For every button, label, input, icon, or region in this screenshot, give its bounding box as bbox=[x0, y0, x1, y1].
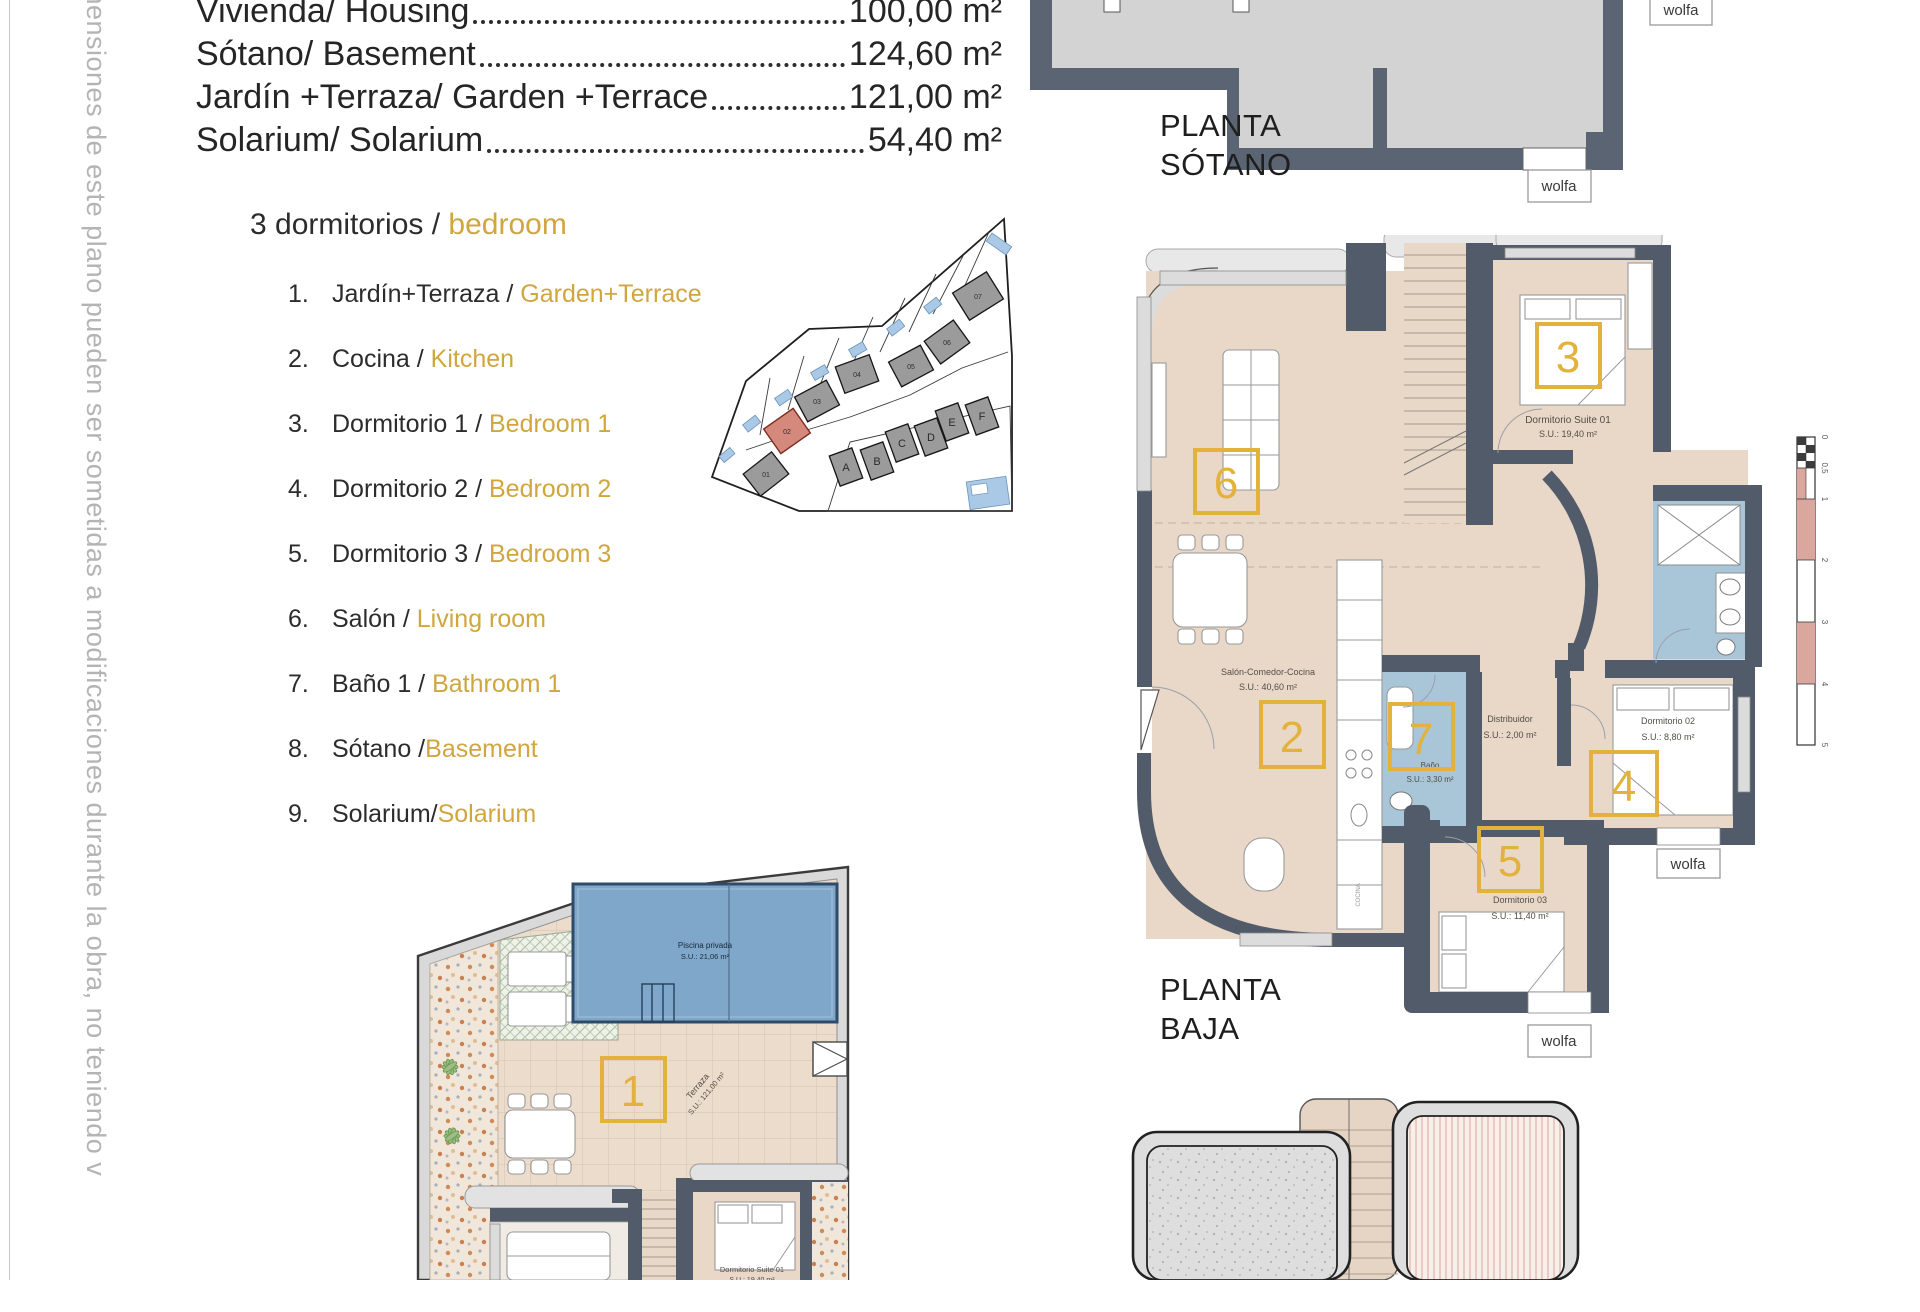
vent-opening bbox=[1657, 828, 1720, 845]
legend-item-en: Garden+Terrace bbox=[520, 280, 701, 308]
basement-floor-upper bbox=[1052, 0, 1603, 68]
legend-item-1: 1.Jardín+Terraza / Garden+Terrace bbox=[288, 280, 702, 345]
svg-text:05: 05 bbox=[907, 364, 915, 371]
legend-item-es: Baño 1 / bbox=[332, 670, 432, 698]
legend-item-number: 5. bbox=[288, 540, 332, 569]
area-row: Sótano/ Basement 124,60 m² bbox=[196, 31, 1002, 74]
legend-item-en: Kitchen bbox=[431, 345, 514, 373]
legend-item-en: Bathroom 1 bbox=[432, 670, 561, 698]
salon-name: Salón-Comedor-Cocina bbox=[1221, 667, 1315, 677]
legend-item-6: 6.Salón / Living room bbox=[288, 605, 702, 670]
svg-text:01: 01 bbox=[762, 472, 770, 479]
staircase bbox=[1404, 243, 1466, 523]
suite-closet bbox=[1628, 263, 1652, 349]
basement-vent-opening bbox=[1523, 148, 1586, 170]
legend-title: 3 dormitorios / bedroom bbox=[250, 208, 567, 242]
pool-name: Piscina privada bbox=[678, 941, 733, 950]
svg-text:03: 03 bbox=[813, 399, 821, 406]
svg-text:4: 4 bbox=[1820, 682, 1829, 687]
garden-suite-name: Dormitorio Suite 01 bbox=[720, 1265, 784, 1274]
area-value: 100,00 m² bbox=[849, 0, 1002, 31]
legend-item-number: 8. bbox=[288, 735, 332, 764]
legend-item-es: Sótano / bbox=[332, 735, 425, 763]
legend-item-en: Solarium bbox=[438, 800, 537, 828]
distribuidor-name: Distribuidor bbox=[1487, 714, 1533, 724]
skylight-hatch bbox=[813, 1042, 847, 1076]
salon-area: S.U.: 40,60 m² bbox=[1239, 682, 1297, 692]
legend-item-number: 9. bbox=[288, 800, 332, 829]
legend-title-es: 3 dormitorios / bbox=[250, 208, 448, 241]
basement-floor-plan: wolfa wolfa bbox=[1020, 0, 1720, 210]
bedroom2-area: S.U.: 8,80 m² bbox=[1641, 732, 1694, 742]
svg-text:E: E bbox=[948, 417, 955, 429]
bedroom3-area: S.U.: 11,40 m² bbox=[1491, 911, 1548, 921]
svg-text:0: 0 bbox=[1820, 435, 1829, 440]
svg-text:0,5: 0,5 bbox=[1820, 462, 1829, 474]
garden-number-1: 1 bbox=[621, 1067, 645, 1116]
room-number-2: 2 bbox=[1280, 713, 1304, 762]
scale-bar: 0 0,5 1 2 3 4 5 bbox=[1797, 435, 1829, 748]
sink bbox=[1720, 579, 1740, 595]
basement-title-line2: SÓTANO bbox=[1160, 145, 1292, 184]
svg-text:07: 07 bbox=[974, 294, 982, 301]
legend-item-number: 7. bbox=[288, 670, 332, 699]
legend-item-es: Dormitorio 1 / bbox=[332, 410, 489, 438]
garden-terrace-plan: Piscina privada S.U.: 21,06 m² 1 Terraza… bbox=[400, 852, 880, 1280]
basement-wall-stub bbox=[1373, 68, 1387, 148]
legend-item-4: 4.Dormitorio 2 / Bedroom 2 bbox=[288, 475, 702, 540]
room-number-6: 6 bbox=[1214, 459, 1238, 508]
cocina-vertical-label: COCINA bbox=[1356, 883, 1362, 906]
side-disclaimer-text: mensiones de este plano pueden ser somet… bbox=[80, 0, 111, 1312]
svg-text:2: 2 bbox=[1820, 558, 1829, 563]
legend-title-en: bedroom bbox=[448, 208, 566, 241]
svg-text:02: 02 bbox=[783, 429, 791, 436]
suite-name: Dormitorio Suite 01 bbox=[1525, 415, 1611, 426]
svg-text:C: C bbox=[898, 438, 906, 450]
legend-item-es: Jardín+Terraza / bbox=[332, 280, 520, 308]
basement-pillar bbox=[1104, 0, 1120, 12]
bedroom2-name: Dormitorio 02 bbox=[1641, 716, 1695, 726]
porch-band bbox=[1146, 249, 1350, 273]
dot-leader bbox=[480, 63, 845, 67]
sink bbox=[1720, 609, 1740, 625]
toilet bbox=[1717, 639, 1735, 655]
legend-item-es: Dormitorio 3 / bbox=[332, 540, 489, 568]
svg-text:A: A bbox=[842, 462, 850, 474]
wolfa-label: wolfa bbox=[1540, 1033, 1577, 1050]
wolfa-label: wolfa bbox=[1662, 2, 1699, 19]
dot-leader bbox=[473, 20, 844, 24]
wolfa-label: wolfa bbox=[1540, 178, 1577, 195]
legend-item-en: Living room bbox=[417, 605, 546, 633]
legend-item-es: Cocina / bbox=[332, 345, 431, 373]
legend-item-en: Bedroom 3 bbox=[489, 540, 611, 568]
bano-area: S.U.: 3,30 m² bbox=[1406, 775, 1453, 784]
legend-item-3: 3.Dormitorio 1 / Bedroom 1 bbox=[288, 410, 702, 475]
dot-leader bbox=[712, 106, 845, 110]
legend-list: 1.Jardín+Terraza / Garden+Terrace 2.Coci… bbox=[288, 280, 702, 865]
svg-text:5: 5 bbox=[1820, 743, 1829, 748]
legend-item-5: 5.Dormitorio 3 / Bedroom 3 bbox=[288, 540, 702, 605]
solarium-deck-right bbox=[1393, 1102, 1578, 1280]
area-label: Jardín +Terraza/ Garden +Terrace bbox=[196, 78, 708, 117]
bedroom3-name: Dormitorio 03 bbox=[1493, 895, 1547, 905]
room-number-4: 4 bbox=[1612, 762, 1636, 811]
dot-leader bbox=[487, 149, 864, 153]
kitchen-counter bbox=[1337, 560, 1382, 929]
wolfa-label: wolfa bbox=[1669, 856, 1706, 873]
suite-area: S.U.: 19,40 m² bbox=[1539, 429, 1597, 439]
area-label: Vivienda/ Housing bbox=[196, 0, 469, 31]
area-value: 54,40 m² bbox=[868, 121, 1002, 160]
vent-opening bbox=[1528, 992, 1591, 1013]
legend-item-number: 1. bbox=[288, 280, 332, 309]
area-value: 121,00 m² bbox=[849, 78, 1002, 117]
legend-item-es: Solarium/ bbox=[332, 800, 438, 828]
svg-text:F: F bbox=[979, 411, 986, 423]
site-plan-map: 07 06 05 04 03 02 01 A B C D E F bbox=[700, 210, 1030, 520]
ground-title-line1: PLANTA bbox=[1160, 970, 1281, 1009]
svg-text:3: 3 bbox=[1820, 620, 1829, 625]
pool-area: S.U.: 21,06 m² bbox=[681, 952, 730, 961]
legend-item-number: 4. bbox=[288, 475, 332, 504]
svg-text:1: 1 bbox=[1820, 497, 1829, 502]
dining-table bbox=[1173, 553, 1247, 627]
page-border-line bbox=[9, 0, 10, 1280]
legend-item-en: Basement bbox=[425, 735, 538, 763]
svg-text:D: D bbox=[927, 432, 935, 444]
basement-pillar bbox=[1586, 132, 1603, 148]
distribuidor-area: S.U.: 2,00 m² bbox=[1483, 730, 1536, 740]
area-row: Vivienda/ Housing 100,00 m² bbox=[196, 0, 1002, 31]
kitchen-island bbox=[1244, 838, 1284, 891]
legend-item-en: Bedroom 1 bbox=[489, 410, 611, 438]
legend-item-es: Salón / bbox=[332, 605, 417, 633]
legend-item-7: 7.Baño 1 / Bathroom 1 bbox=[288, 670, 702, 735]
svg-text:04: 04 bbox=[853, 372, 861, 379]
legend-item-number: 6. bbox=[288, 605, 332, 634]
solarium-deck-left bbox=[1133, 1132, 1350, 1280]
area-value: 124,60 m² bbox=[849, 35, 1002, 74]
basement-title: PLANTA SÓTANO bbox=[1160, 106, 1292, 184]
ground-title: PLANTA BAJA bbox=[1160, 970, 1281, 1048]
area-summary: Vivienda/ Housing 100,00 m² Sótano/ Base… bbox=[196, 0, 1002, 160]
tv-cabinet bbox=[1152, 363, 1166, 457]
legend-item-number: 3. bbox=[288, 410, 332, 439]
area-label: Sótano/ Basement bbox=[196, 35, 476, 74]
room-number-5: 5 bbox=[1498, 837, 1522, 886]
ground-floor-plan: Dormitorio Suite 01 S.U.: 19,40 m² Salón… bbox=[1100, 235, 1880, 1065]
area-row: Solarium/ Solarium 54,40 m² bbox=[196, 117, 1002, 160]
area-label: Solarium/ Solarium bbox=[196, 121, 483, 160]
legend-item-2: 2.Cocina / Kitchen bbox=[288, 345, 702, 410]
basement-floor-lower bbox=[1239, 68, 1603, 148]
svg-text:06: 06 bbox=[943, 340, 951, 347]
legend-item-es: Dormitorio 2 / bbox=[332, 475, 489, 503]
area-row: Jardín +Terraza/ Garden +Terrace 121,00 … bbox=[196, 74, 1002, 117]
room-number-7: 7 bbox=[1409, 715, 1433, 764]
solarium-plan bbox=[1120, 1085, 1780, 1280]
basement-title-line1: PLANTA bbox=[1160, 106, 1292, 145]
legend-item-8: 8.Sótano /Basement bbox=[288, 735, 702, 800]
svg-text:B: B bbox=[873, 456, 880, 468]
garden-dining-set bbox=[505, 1094, 575, 1174]
legend-item-number: 2. bbox=[288, 345, 332, 374]
room-number-3: 3 bbox=[1556, 333, 1580, 382]
gravel-strip bbox=[430, 941, 498, 1280]
legend-item-en: Bedroom 2 bbox=[489, 475, 611, 503]
ground-title-line2: BAJA bbox=[1160, 1009, 1281, 1048]
basement-pillar bbox=[1233, 0, 1249, 12]
